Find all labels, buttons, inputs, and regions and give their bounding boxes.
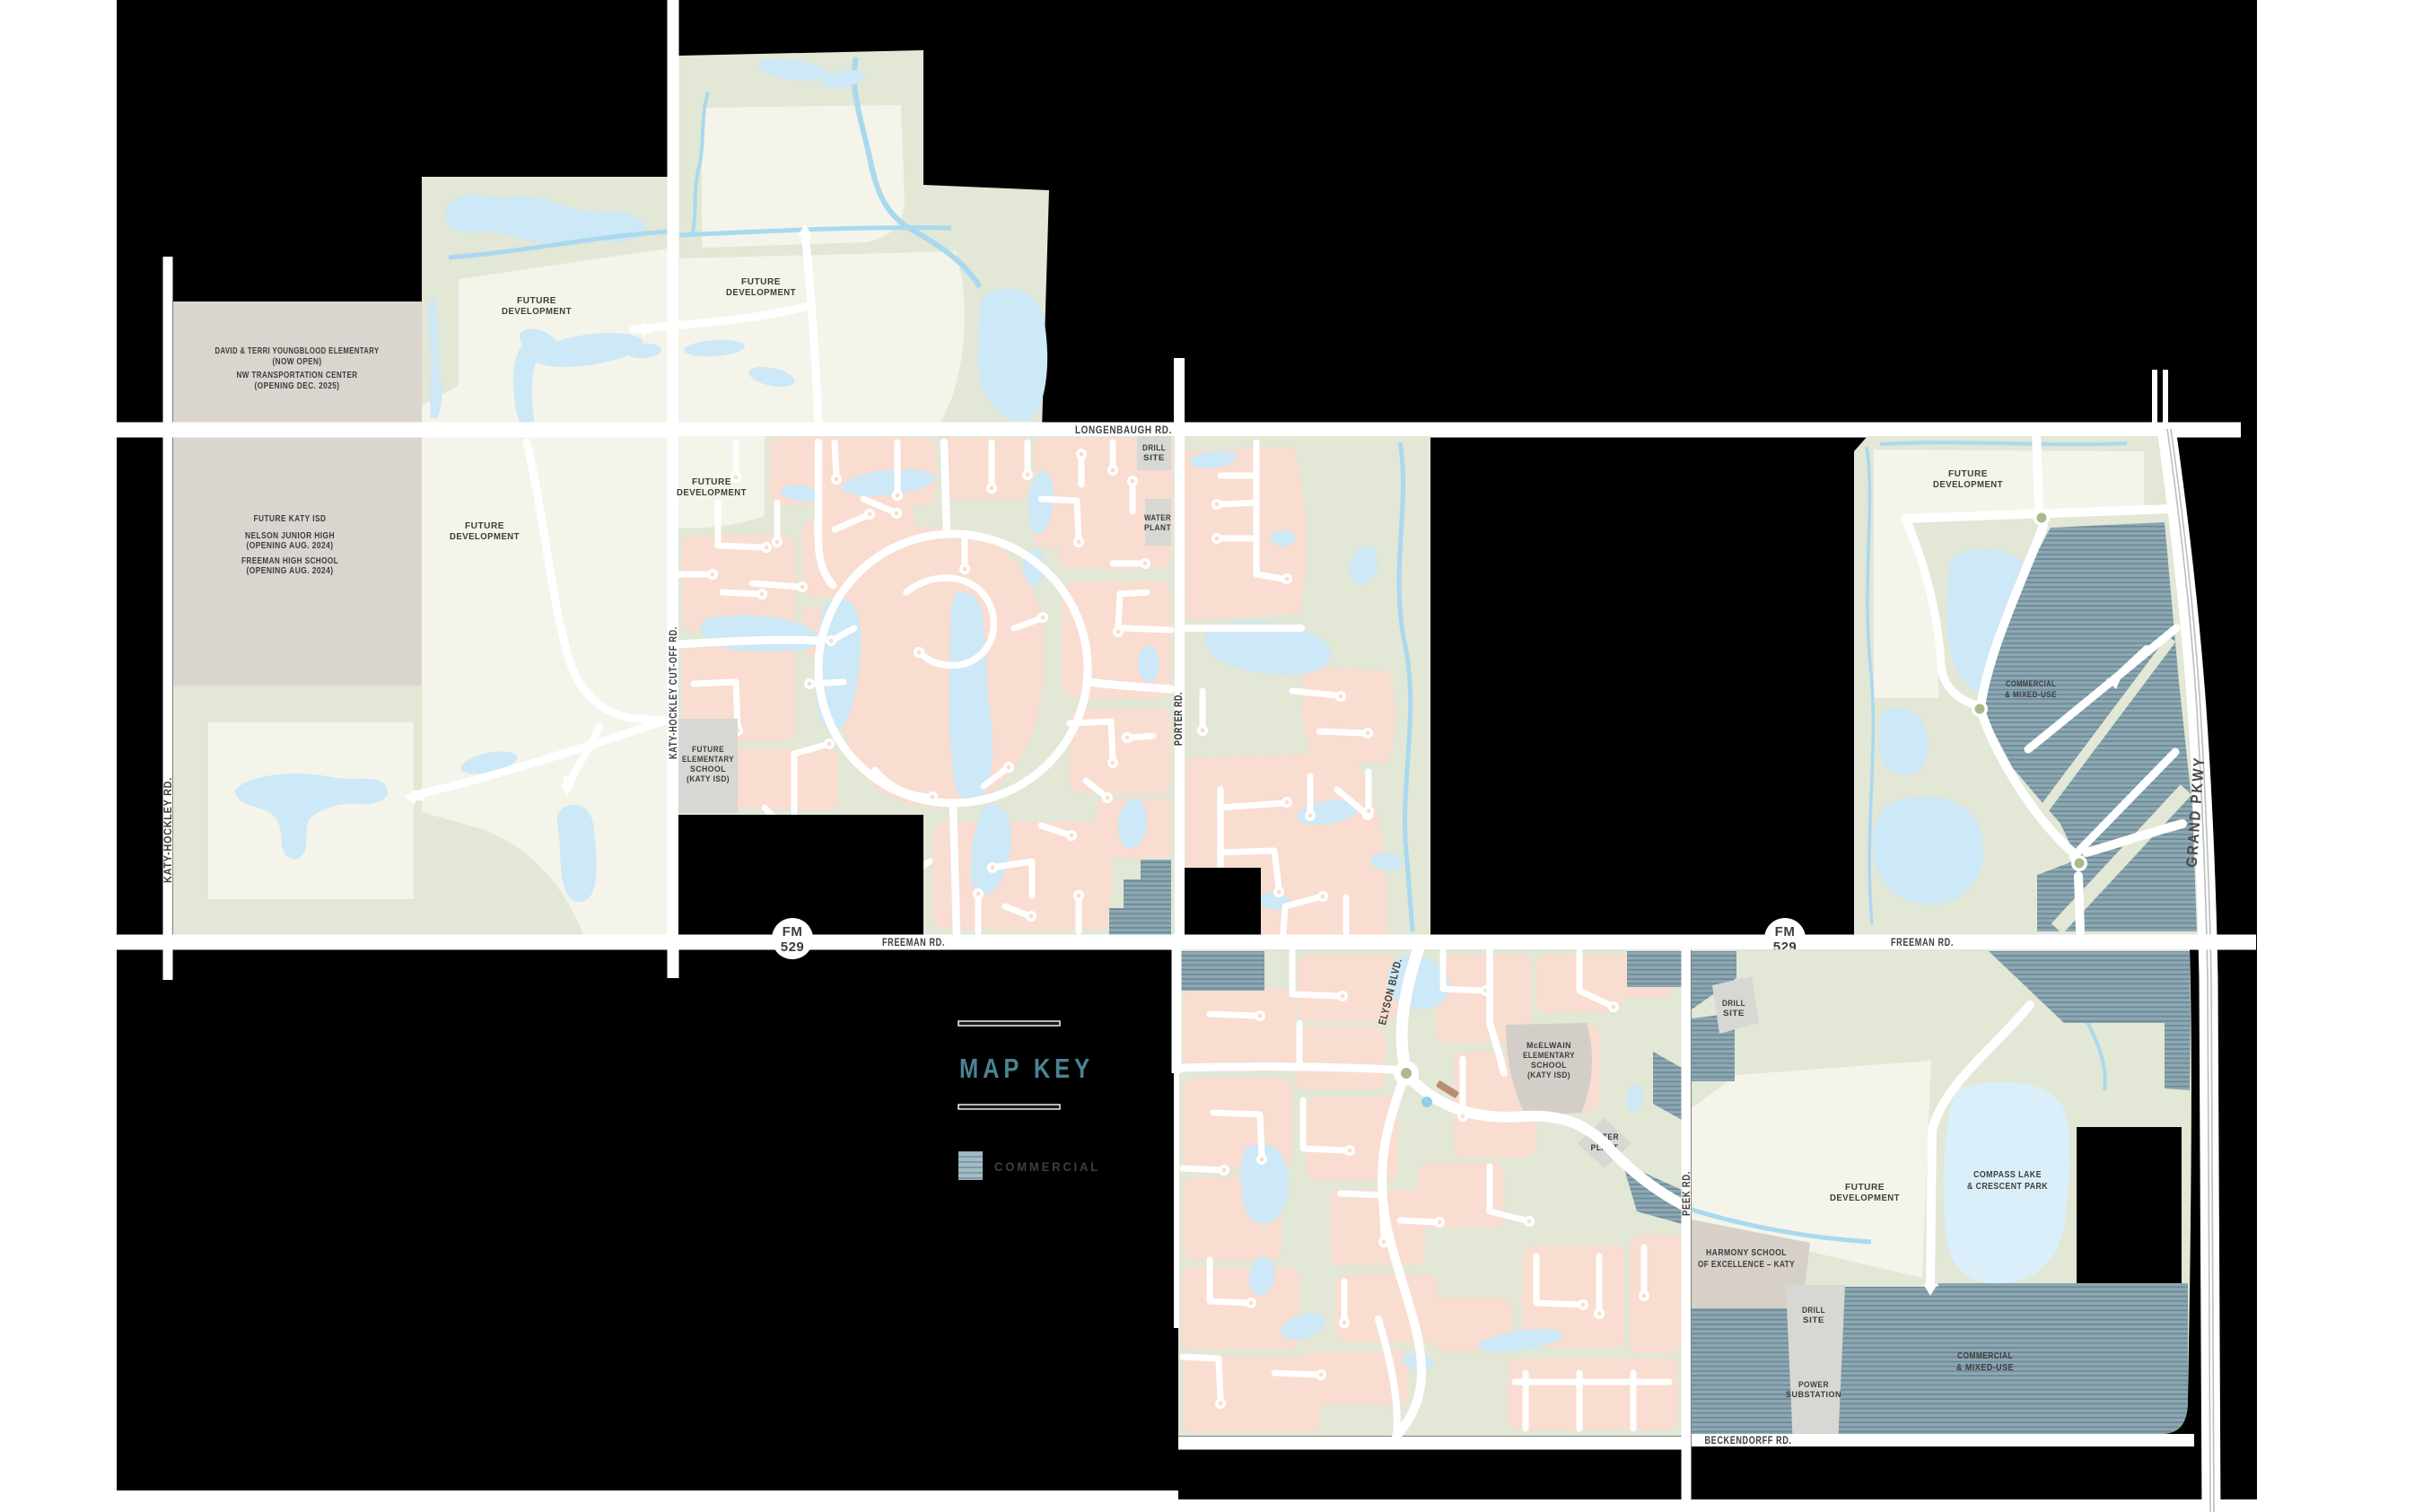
svg-text:(KATY ISD): (KATY ISD) (1527, 1071, 1570, 1080)
svg-text:FUTURE: FUTURE (465, 520, 504, 531)
svg-text:WATER: WATER (1144, 513, 1171, 523)
svg-text:(OPENING DEC. 2025): (OPENING DEC. 2025) (255, 380, 340, 391)
svg-text:FREEMAN RD.: FREEMAN RD. (1891, 936, 1954, 948)
svg-text:DRILL: DRILL (1142, 443, 1166, 453)
svg-text:OF EXCELLENCE – KATY: OF EXCELLENCE – KATY (1698, 1260, 1795, 1270)
svg-text:COMMERCIAL: COMMERCIAL (994, 1159, 1100, 1174)
svg-text:ELEMENTARY: ELEMENTARY (682, 755, 734, 765)
svg-text:POWER: POWER (1798, 1380, 1829, 1390)
svg-text:PLANT: PLANT (1144, 523, 1171, 533)
svg-text:(OPENING AUG. 2024): (OPENING AUG. 2024) (247, 540, 334, 551)
svg-text:(NOW OPEN): (NOW OPEN) (273, 356, 322, 367)
svg-text:DRILL: DRILL (1722, 999, 1745, 1009)
svg-text:FUTURE: FUTURE (1948, 468, 1988, 479)
svg-text:BECKENDORFF RD.: BECKENDORFF RD. (1705, 1434, 1792, 1446)
svg-text:FUTURE KATY ISD: FUTURE KATY ISD (254, 513, 327, 524)
svg-text:ELEMENTARY: ELEMENTARY (1523, 1051, 1575, 1061)
svg-text:FUTURE: FUTURE (741, 276, 781, 287)
svg-text:FREEMAN RD.: FREEMAN RD. (882, 936, 945, 948)
svg-text:FUTURE: FUTURE (692, 476, 731, 487)
svg-text:(OPENING AUG. 2024): (OPENING AUG. 2024) (247, 565, 334, 576)
svg-text:SITE: SITE (1723, 1009, 1745, 1018)
svg-text:529: 529 (781, 940, 805, 955)
svg-text:FUTURE: FUTURE (692, 745, 724, 755)
svg-text:DEVELOPMENT: DEVELOPMENT (1830, 1193, 1900, 1203)
svg-text:DEVELOPMENT: DEVELOPMENT (677, 487, 747, 498)
svg-text:FUTURE: FUTURE (517, 295, 556, 306)
svg-text:DEVELOPMENT: DEVELOPMENT (502, 306, 572, 317)
svg-text:SITE: SITE (1803, 1315, 1824, 1325)
svg-text:NW TRANSPORTATION CENTER: NW TRANSPORTATION CENTER (237, 370, 358, 380)
svg-text:DRILL: DRILL (1802, 1306, 1825, 1315)
svg-text:HARMONY SCHOOL: HARMONY SCHOOL (1706, 1248, 1787, 1258)
svg-text:DAVID & TERRI YOUNGBLOOD ELEME: DAVID & TERRI YOUNGBLOOD ELEMENTARY (215, 345, 380, 356)
svg-text:FM: FM (1775, 924, 1796, 940)
svg-text:McELWAIN: McELWAIN (1526, 1041, 1571, 1051)
svg-text:MAP KEY: MAP KEY (959, 1053, 1094, 1084)
svg-text:& MIXED-USE: & MIXED-USE (1956, 1363, 2014, 1373)
svg-text:DEVELOPMENT: DEVELOPMENT (450, 531, 520, 542)
svg-text:COMMERCIAL: COMMERCIAL (1957, 1351, 2013, 1361)
svg-text:SUBSTATION: SUBSTATION (1786, 1390, 1841, 1400)
svg-text:DEVELOPMENT: DEVELOPMENT (726, 287, 796, 298)
svg-text:FM: FM (783, 924, 803, 940)
svg-text:KATY-HOCKLEY RD.: KATY-HOCKLEY RD. (162, 777, 174, 883)
svg-text:COMPASS LAKE: COMPASS LAKE (1973, 1170, 2042, 1180)
svg-text:SITE: SITE (1143, 453, 1165, 463)
svg-text:PEEK RD.: PEEK RD. (1680, 1171, 1693, 1216)
svg-text:PORTER RD.: PORTER RD. (1172, 692, 1185, 746)
svg-text:LONGENBAUGH RD.: LONGENBAUGH RD. (1075, 424, 1172, 436)
svg-text:FUTURE: FUTURE (1845, 1182, 1885, 1193)
svg-text:COMMERCIAL: COMMERCIAL (2006, 679, 2056, 689)
svg-text:& CRESCENT PARK: & CRESCENT PARK (1967, 1182, 2048, 1192)
svg-text:DEVELOPMENT: DEVELOPMENT (1933, 479, 2003, 490)
svg-text:SCHOOL: SCHOOL (690, 765, 726, 774)
svg-text:& MIXED-USE: & MIXED-USE (2005, 690, 2057, 700)
svg-text:SCHOOL: SCHOOL (1531, 1061, 1567, 1071)
svg-text:(KATY ISD): (KATY ISD) (687, 774, 730, 784)
